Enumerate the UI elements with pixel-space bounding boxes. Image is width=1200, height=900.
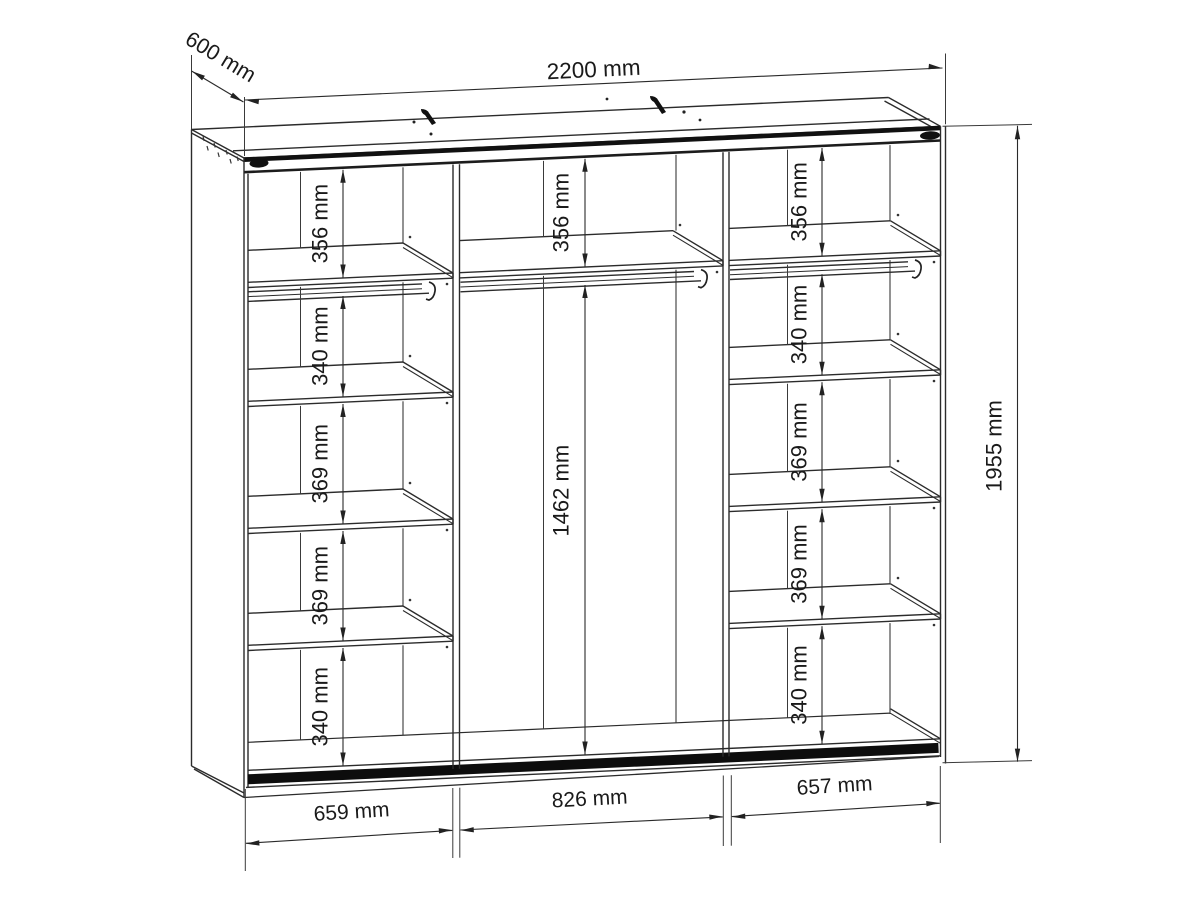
- svg-text:356 mm: 356 mm: [308, 184, 333, 263]
- svg-text:1462 mm: 1462 mm: [549, 445, 574, 537]
- svg-text:340 mm: 340 mm: [308, 667, 333, 746]
- svg-text:356 mm: 356 mm: [549, 173, 574, 252]
- svg-text:1955 mm: 1955 mm: [982, 400, 1007, 492]
- svg-text:826 mm: 826 mm: [551, 786, 628, 813]
- svg-text:340 mm: 340 mm: [787, 645, 812, 724]
- svg-text:657 mm: 657 mm: [796, 772, 873, 800]
- svg-text:369 mm: 369 mm: [787, 524, 812, 603]
- svg-text:340 mm: 340 mm: [308, 306, 333, 385]
- svg-text:659 mm: 659 mm: [313, 798, 390, 826]
- svg-text:369 mm: 369 mm: [308, 546, 333, 625]
- svg-text:369 mm: 369 mm: [787, 402, 812, 481]
- svg-text:340 mm: 340 mm: [787, 285, 812, 364]
- svg-text:356 mm: 356 mm: [787, 162, 812, 241]
- svg-text:2200 mm: 2200 mm: [546, 55, 641, 84]
- svg-text:369 mm: 369 mm: [308, 424, 333, 503]
